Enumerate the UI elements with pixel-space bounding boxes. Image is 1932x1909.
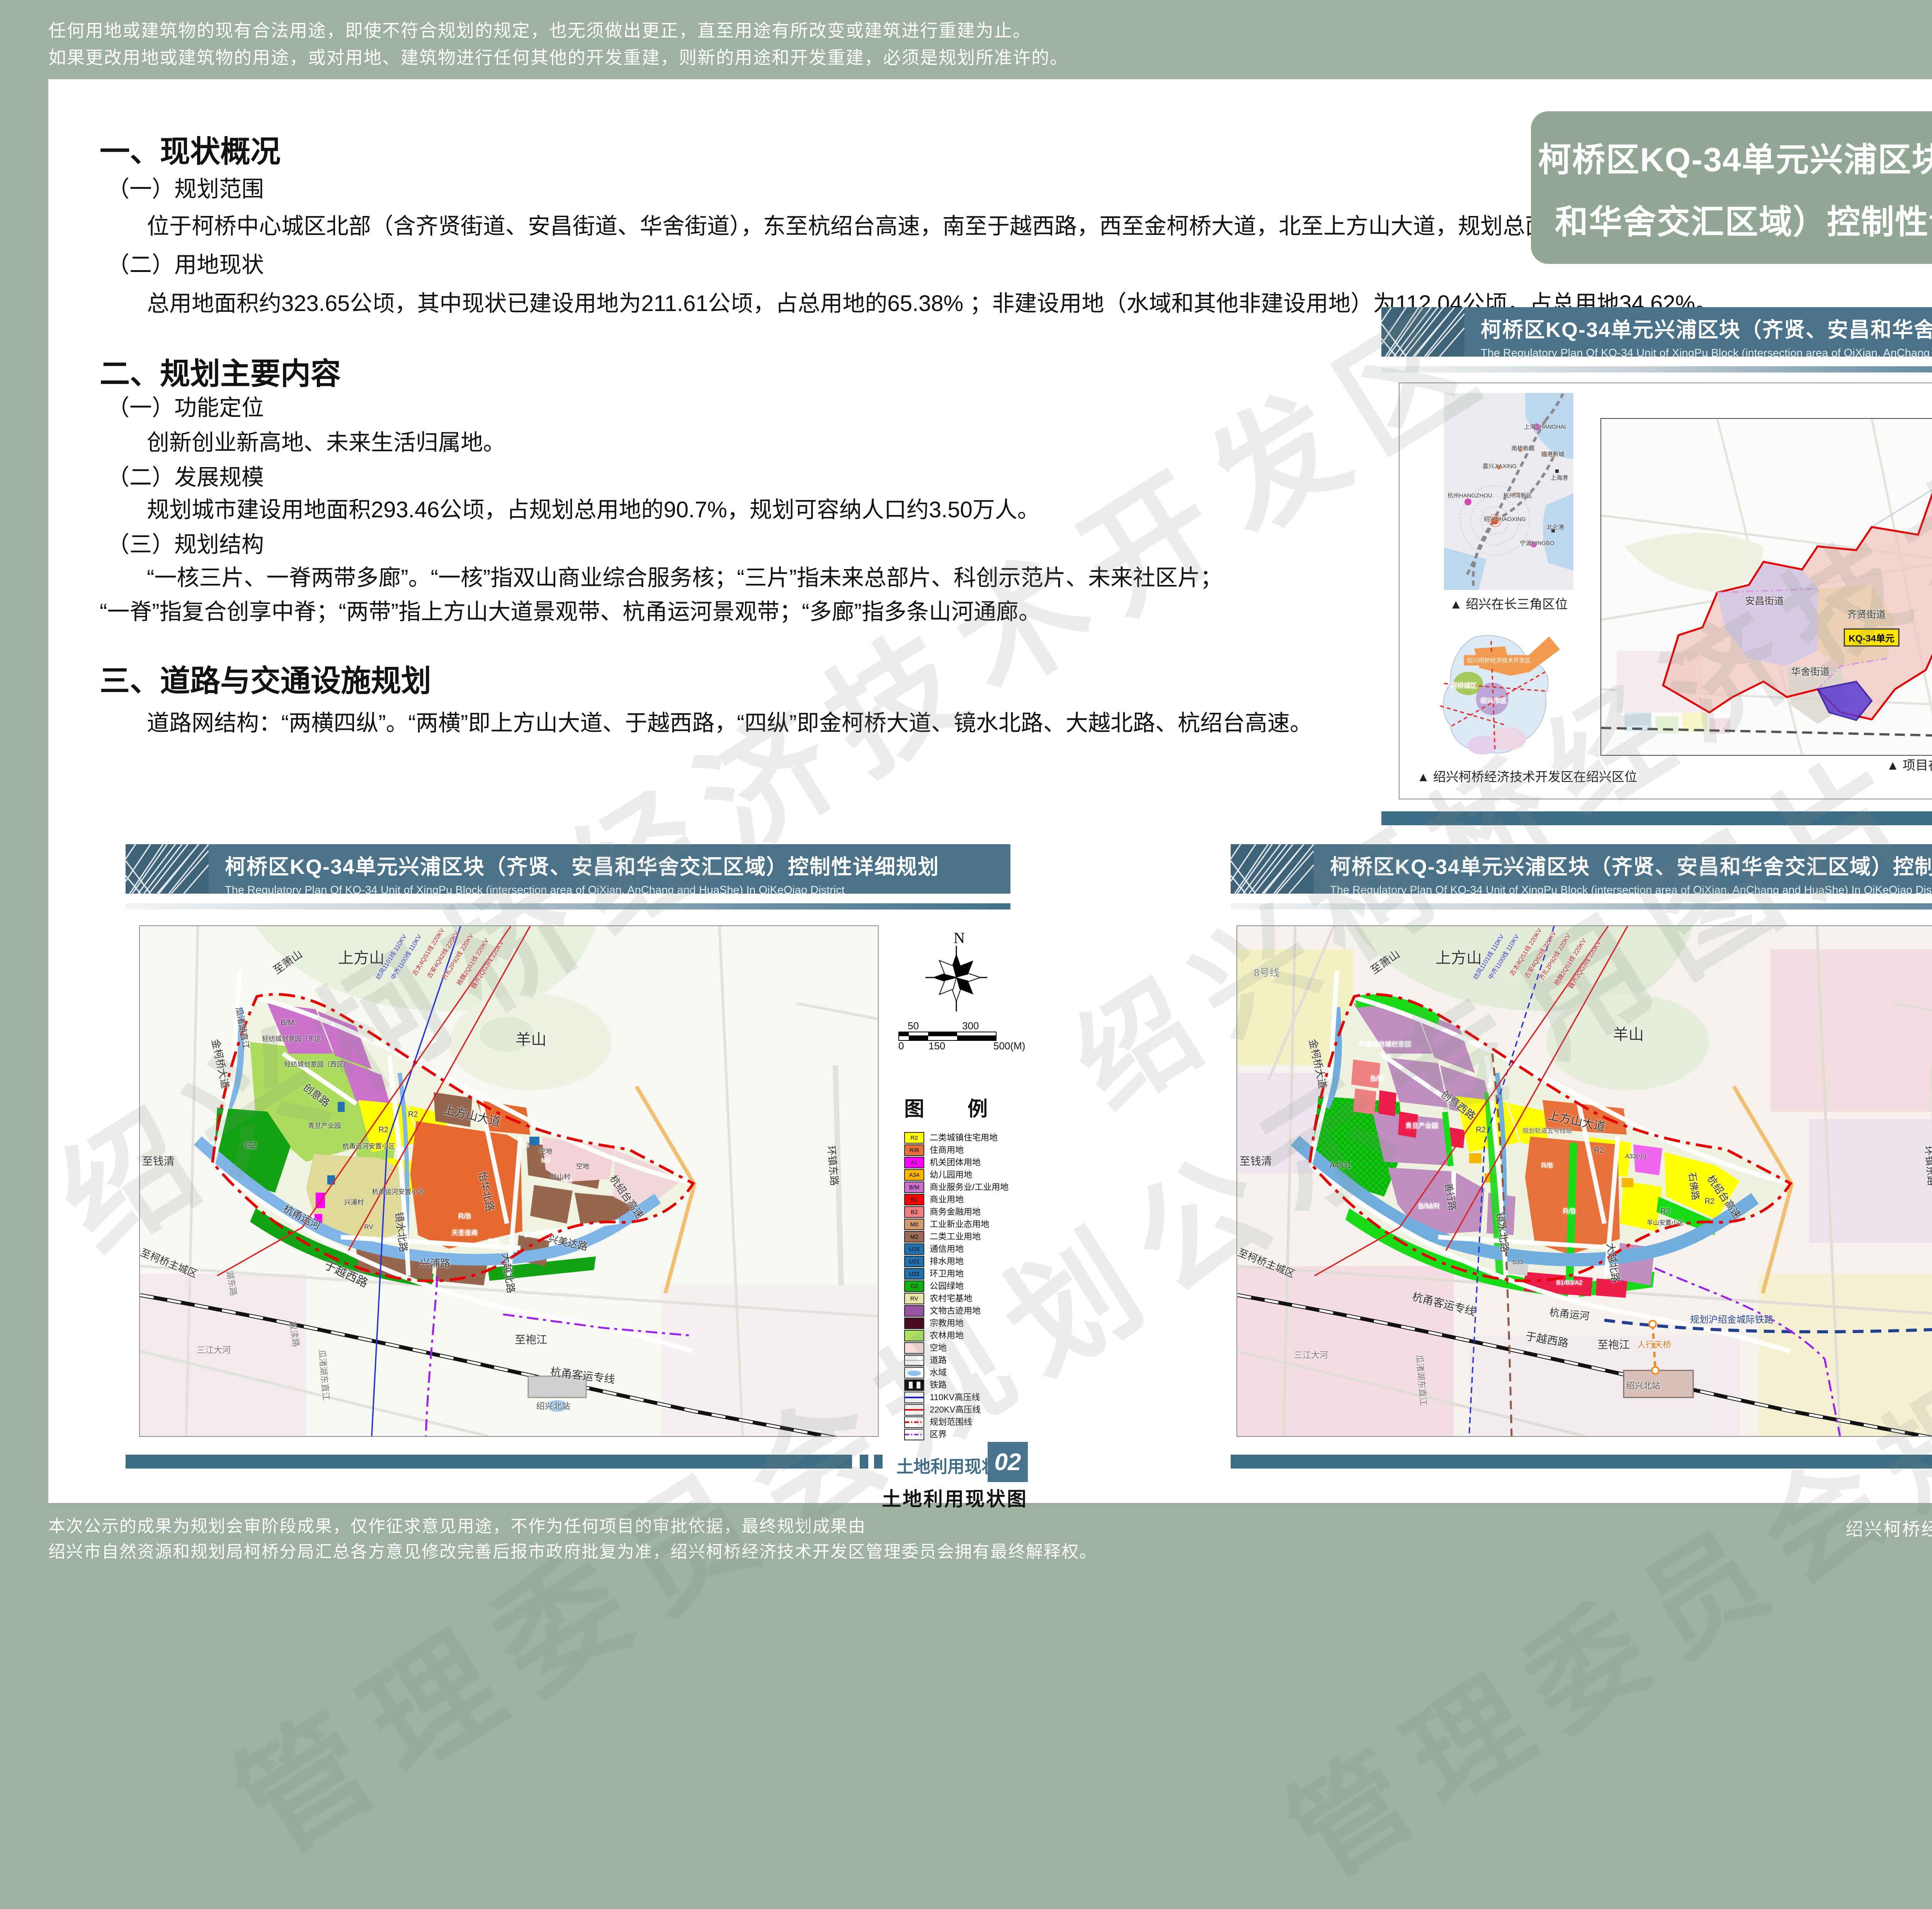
panel-title-en: The Regulatory Plan Of KQ-34 Unit of Xin… [1481,347,1932,360]
minimap2-graphic [1429,625,1564,762]
legend-label: 铁路 [930,1380,947,1390]
legend-row: 道路 [904,1354,1028,1367]
minimap1-caption: ▲ 绍兴在长三角区位 [1444,594,1573,612]
legend-row: RV农村宅基地 [904,1292,1028,1305]
map-label: 杭甬运河安置小区 [342,1141,395,1150]
legend-swatch-icon [904,1367,924,1379]
map-label: 8号线 [1254,965,1279,979]
map-label: 安昌街道 [1745,593,1784,607]
map-label: R2 [1476,1126,1486,1135]
legend-swatch-icon: U22 [904,1268,924,1280]
legend-swatch-icon: M2 [904,1231,924,1243]
map-label: 杭甬运河安置小区 [372,1187,425,1196]
map-label: R2 [1660,1207,1670,1216]
planning-notice-poster: { "page": { "notice_lines": [ "任何用地或建筑物的… [0,0,1932,1582]
legend-label: 商业用地 [930,1195,964,1204]
legend-row: U21排水用地 [904,1255,1028,1268]
notice-line-1: 任何用地或建筑物的现有合法用途，即使不符合规划的规定，也无须做出更正，直至用途有… [48,17,1068,44]
location-figure: 上海SHANGHAI南桥新城临港新城嘉兴JIAXING上海港杭州HANGZHOU… [1399,382,1932,799]
panel-title-zh: 柯桥区KQ-34单元兴浦区块（齐贤、安昌和华舍交汇区域）控制性详细规划 [1481,313,1932,343]
section-1-text-1: 位于柯桥中心城区北部（含齐贤街道、安昌街道、华舍街道），东至杭绍台高速，南至于越… [147,208,1728,240]
legend-label: 农村宅基地 [930,1294,972,1303]
panel-title-en: The Regulatory Plan Of KQ-34 Unit of Xin… [1330,884,1932,897]
map-label: 三江大河 [1294,1348,1328,1361]
legend-label: 商业服务业/工业用地 [930,1183,1009,1192]
legend-row: B/M商业服务业/工业用地 [904,1181,1028,1193]
caption-square-icon [874,1455,883,1469]
compass-north-label: N [954,929,965,947]
header-pattern-icon [1381,307,1464,357]
legend-swatch-icon: M0 [904,1219,924,1230]
header-pattern-icon [1231,844,1314,894]
legend-row: A1机关团体用地 [904,1156,1028,1169]
section-1-label-1: （一）规划范围 [107,171,264,203]
legend-row: R/B住商用地 [904,1144,1028,1156]
map-label: 上海SHANGHAI [1524,422,1566,430]
current-landuse-graphic [140,926,878,1436]
legend-swatch-icon [904,1404,924,1416]
bigmap-caption: ▲ 项目在绍兴柯桥经济技术开发区区位 [1747,755,1932,773]
map-label: 至袍江 [515,1331,547,1347]
map-label: B/M [1371,1075,1384,1084]
legend-swatch-icon [904,1317,924,1329]
map-label: R2 [379,1126,389,1135]
legend-swatch-icon [904,1342,924,1354]
map-label: B/M/R [1418,1202,1440,1211]
map-label: B/M [281,1018,294,1027]
legend-swatch-icon [904,1305,924,1317]
legend-label: 空地 [930,1343,947,1353]
map-label: 北仑港 [1547,523,1564,531]
legend-swatch-icon: A1 [904,1157,924,1168]
triangle-marker-icon: ▲ [1886,758,1899,772]
legend-row: G2公园绿地 [904,1280,1028,1292]
legend-swatch-icon [904,1392,924,1403]
legend-label: 商务金融用地 [930,1207,981,1217]
map-label: 兰山村 [551,1171,570,1181]
legend-title: 图 例 [904,1093,1028,1122]
legend-label: 排水用地 [930,1257,964,1266]
legend-swatch-icon: U21 [904,1256,924,1267]
map-label: R/B [1563,1207,1576,1216]
map-label: M2 [541,1157,551,1164]
legend-swatch-icon: R2 [904,1132,924,1144]
legend-row: 220KV高压线 [904,1404,1028,1416]
map-label: 宁波NINGBO [1520,539,1554,547]
map-label: 空地 [576,1161,589,1171]
section-3-text: 道路网结构：“两横四纵”。“两横”即上方山大道、于越西路，“四纵”即金柯桥大道、… [147,705,1312,737]
current-landuse-header: 柯桥区KQ-34单元兴浦区块（齐贤、安昌和华舍交汇区域）控制性详细规划 The … [126,844,1010,894]
header-pattern-icon [126,844,209,894]
map-label: 至钱清 [1240,1153,1272,1168]
legend-label: 水域 [930,1368,947,1377]
map-label: 绍兴北站 [536,1399,570,1412]
map-label: 空地 [539,1146,553,1155]
current-caption-bar [126,1455,852,1469]
figure-number-badge: 02 [988,1442,1028,1482]
map-label: 规划沪绍金城际铁路 [1690,1312,1774,1326]
legend-label: 机关团体用地 [930,1158,981,1167]
legend-swatch-icon [904,1429,924,1440]
notice-title-line-2: 和华舍交汇区域）控制性详细规划公示 [1555,195,1932,243]
legend-label: 环卫用地 [930,1269,964,1278]
gradient-divider [1231,903,1932,909]
map-label: R2 [408,1110,418,1119]
legend-row: 区界 [904,1428,1028,1441]
section-2-text-3b: “一脊”指复合创享中脊；“两带”指上方山大道景观带、杭甬运河景观带；“多廊”指多… [100,593,1041,626]
footer-authority: 绍兴柯桥经济技术开发区管理委员会 [1376,1515,1932,1541]
planned-landuse-map: 上方山羊山至萧山8号线金柯桥大道创意西路上方山大道善行路镜水北路规划轨道五号线站… [1236,925,1932,1437]
section-1-heading: 一、现状概况 [100,127,281,171]
map-label: RV [364,1223,373,1231]
district-location-map: 马鞍街道安昌街道齐贤街道华舍街道KQ-34单元 [1600,418,1932,756]
map-label: 三江大河 [197,1343,231,1356]
gradient-divider [126,903,1010,909]
map-label: 上方山 [338,945,384,968]
planned-caption-bar [1231,1455,1932,1469]
planned-landuse-graphic [1237,926,1932,1436]
legend-row: A34幼儿园用地 [904,1169,1028,1181]
map-label: 人行天桥 [1637,1338,1671,1350]
map-label: A4/G1 [1330,1161,1352,1170]
yangtze-delta-minimap: 上海SHANGHAI南桥新城临港新城嘉兴JIAXING上海港杭州HANGZHOU… [1444,393,1573,590]
map-label: 绍兴市区 [1480,695,1507,705]
map-label: R/B [458,1212,471,1221]
map-label: 规划轨道五号线站 [1522,1125,1572,1135]
map-label: 杭州HANGZHOU [1447,491,1492,500]
map-label: 兴浦路 [420,1256,450,1270]
map-label: A33(小) [1625,1151,1646,1160]
map-label: S33 [1512,1259,1523,1266]
caption-square-icon [860,1455,868,1469]
map-label: 中国轻纺城创意园 [1359,1039,1411,1048]
triangle-marker-icon: ▲ [1417,770,1430,784]
planned-landuse-header: 柯桥区KQ-34单元兴浦区块（齐贤、安昌和华舍交汇区域）控制性详细规划 The … [1231,844,1932,894]
section-1-label-2: （二）用地现状 [107,246,264,279]
map-label: 绍兴SHAOXING [1484,515,1526,523]
legend-row: 文物古迹用地 [904,1305,1028,1317]
map-label: 青旦产业园 [308,1120,341,1130]
location-panel-header: 柯桥区KQ-34单元兴浦区块（齐贤、安昌和华舍交汇区域）控制性详细规划 The … [1381,307,1932,357]
legend-swatch-icon: B/M [904,1181,924,1193]
legend-row: 水域 [904,1367,1028,1379]
map-label: R2 [1705,1197,1715,1206]
map-label: 齐贤街道 [1847,607,1886,621]
legend-label: 通信用地 [930,1244,964,1254]
legend-row: 农林用地 [904,1329,1028,1342]
legend-swatch-icon: RV [904,1293,924,1304]
legend-row: M0工业新业态用地 [904,1218,1028,1231]
map-label: 上方山 [1435,945,1482,968]
section-2-label-1: （一）功能定位 [107,389,264,422]
legend-row: B1商业用地 [904,1193,1028,1206]
location-map-graphic [1601,419,1932,755]
map-label: U15 [518,1142,529,1149]
legend-label: 工业新业态用地 [930,1220,989,1229]
map-label: 绍兴柯桥经济技术开发区 [1464,655,1534,666]
current-caption: 土地利用现状图 [811,1484,1028,1511]
map-label: 嘉兴JIAXING [1483,462,1517,470]
legend-row: 规划范围线 [904,1416,1028,1428]
legend-label: 220KV高压线 [930,1405,981,1414]
legend-label: 二类城镇住宅用地 [930,1133,998,1142]
map-label: G2 [244,1140,257,1151]
map-label: 杭州湾新区 [1503,491,1532,500]
legend-label: 道路 [930,1356,947,1365]
map-label: 柯桥城区 [1451,680,1477,690]
legend-label: 宗教用地 [930,1319,964,1328]
map-label: 羊山 [1613,1022,1644,1044]
triangle-marker-icon: ▲ [1450,597,1463,611]
map-label: 上海港 [1551,474,1568,482]
map-label: 兴浦村 [344,1197,364,1206]
section-2-text-1: 创新创业新高地、未来生活归属地。 [147,424,505,457]
map-label: B1/B3/A2 [1556,1280,1583,1287]
section-2-label-2: （二）发展规模 [107,459,264,491]
map-label: R/B [488,1238,500,1247]
shaoxing-minimap: 绍兴柯桥经济技术开发区柯桥城区绍兴市区 [1429,625,1564,762]
legend-row: 铁路 [904,1379,1028,1391]
location-caption-bar [1381,811,1932,825]
gradient-divider [1381,366,1932,372]
legend-label: 公园绿地 [930,1282,964,1291]
section-2-text-2: 规划城市建设用地面积293.46公顷，占规划总用地的90.7%，规划可容纳人口约… [147,491,1040,524]
map-label: R/B [1541,1162,1553,1170]
map-label: 南桥新城 [1511,444,1534,452]
legend-row: 宗教用地 [904,1317,1028,1329]
current-map-legend: 图 例 R2二类城镇住宅用地R/B住商用地A1机关团体用地A34幼儿园用地B/M… [904,1093,1028,1441]
notice-title-line-1: 柯桥区KQ-34单元兴浦区块（齐贤、安昌 [1538,133,1932,181]
map-label: 轻纺城创意园（西区） [284,1059,350,1069]
legend-swatch-icon: U15 [904,1243,924,1255]
legend-label: 文物古迹用地 [930,1306,981,1316]
footer-disclaimer: 本次公示的成果为规划会审阶段成果，仅作征求意见用途，不作为任何项目的审批依据，最… [48,1514,1097,1565]
map-label: 绍兴北站 [1626,1379,1660,1391]
legend-label: 幼儿园用地 [930,1170,972,1180]
map-label: KQ-34单元 [1844,628,1900,646]
notice-title-box: 柯桥区KQ-34单元兴浦区块（齐贤、安昌 和华舍交汇区域）控制性详细规划公示 [1531,111,1932,264]
legend-swatch-icon [904,1355,924,1366]
section-2-label-3: （三）规划结构 [107,526,264,559]
legend-swatch-icon: B2 [904,1206,924,1218]
legend-row: R2二类城镇住宅用地 [904,1132,1028,1144]
current-landuse-map: 上方山羊山至萧山金柯桥大道瓜渚湖直江创意路上方山大道环镇东路杭甬运河镜水北路怡华… [139,925,879,1437]
minimap2-caption: ▲ 绍兴柯桥经济技术开发区在绍兴区位 [1417,767,1575,785]
legend-row: M2二类工业用地 [904,1231,1028,1243]
map-label: R2 [1594,1146,1604,1155]
section-2-heading: 二、规划主要内容 [100,350,341,393]
notice-line-2: 如果更改用地或建筑物的用途，或对用地、建筑物进行任何其他的开发重建，则新的用途和… [48,44,1068,71]
compass-rose-icon: N [923,929,989,1014]
map-label: 羊山安置小区 [1647,1217,1684,1227]
legend-label: 住商用地 [930,1146,964,1155]
planned-caption: 土地利用规划图 [1917,1484,1932,1511]
map-label: 轻纺城创意园（东区） [262,1034,328,1043]
panel-title-zh: 柯桥区KQ-34单元兴浦区块（齐贤、安昌和华舍交汇区域）控制性详细规划 [225,850,939,880]
map-label: 华舍街道 [1791,664,1830,678]
legend-swatch-icon: R/B [904,1144,924,1156]
section-2-text-3a: “一核三片、一脊两带多廊”。“一核”指双山商业综合服务核；“三片”指未来总部片、… [147,559,1223,592]
legend-swatch-icon: B1 [904,1194,924,1205]
map-label: 青旦产业园 [1405,1120,1438,1130]
legend-swatch-icon [904,1379,924,1391]
legend-row: U15通信用地 [904,1243,1028,1255]
legend-swatch-icon [904,1416,924,1428]
section-3-heading: 三、道路与交通设施规划 [100,657,431,700]
legend-row: 空地 [904,1342,1028,1354]
legend-swatch-icon: G2 [904,1280,924,1292]
panel-title-en: The Regulatory Plan Of KQ-34 Unit of Xin… [225,884,939,897]
legend-label: 110KV高压线 [930,1393,980,1402]
map-label: 至钱清 [142,1153,175,1168]
legend-label: 区界 [930,1430,947,1439]
map-label: 临港新城 [1541,450,1564,458]
legend-row: 110KV高压线 [904,1391,1028,1404]
map-label: 羊山 [515,1027,546,1049]
legend-row: U22环卫用地 [904,1268,1028,1280]
legend-label: 二类工业用地 [930,1232,981,1241]
top-notice: 任何用地或建筑物的现有合法用途，即使不符合规划的规定，也无须做出更正，直至用途有… [48,17,1068,71]
panel-title-zh: 柯桥区KQ-34单元兴浦区块（齐贤、安昌和华舍交汇区域）控制性详细规划 [1330,850,1932,880]
map-label: 至袍江 [1597,1336,1630,1352]
legend-label: 规划范围线 [930,1418,972,1427]
legend-swatch-icon: A34 [904,1169,924,1181]
scale-bar: 50 300 0 150 500(M) [898,1020,1014,1047]
map-label: 天圣佳商 [451,1227,478,1237]
legend-row: B2商务金融用地 [904,1206,1028,1218]
legend-swatch-icon [904,1330,924,1341]
legend-label: 农林用地 [930,1331,964,1340]
